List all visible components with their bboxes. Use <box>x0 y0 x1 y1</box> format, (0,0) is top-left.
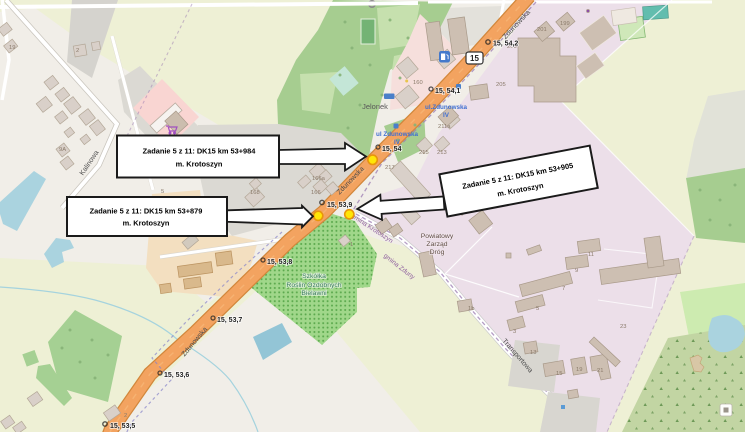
svg-text:199: 199 <box>560 21 570 27</box>
svg-text:7: 7 <box>562 286 565 292</box>
svg-text:15, 53,9: 15, 53,9 <box>327 202 352 209</box>
svg-text:11: 11 <box>588 252 594 258</box>
svg-text:Szkółka: Szkółka <box>302 273 326 280</box>
svg-text:1b: 1b <box>468 306 474 312</box>
svg-text:166: 166 <box>311 190 321 196</box>
svg-text:15, 54: 15, 54 <box>382 146 402 153</box>
svg-text:215: 215 <box>419 150 429 156</box>
svg-text:Bielawni: Bielawni <box>301 290 327 297</box>
svg-text:15, 53,5: 15, 53,5 <box>110 423 135 430</box>
svg-text:15, 53,6: 15, 53,6 <box>164 372 189 379</box>
svg-text:Zarząd: Zarząd <box>426 241 447 248</box>
svg-text:15, 53,7: 15, 53,7 <box>217 317 242 324</box>
svg-text:Jelonek: Jelonek <box>362 102 388 111</box>
svg-text:IV: IV <box>443 112 450 119</box>
svg-text:5: 5 <box>536 306 539 312</box>
svg-text:201: 201 <box>537 27 547 33</box>
svg-text:15, 53,8: 15, 53,8 <box>267 259 292 266</box>
svg-text:Dróg: Dróg <box>430 249 445 256</box>
svg-text:21: 21 <box>597 368 603 374</box>
svg-text:15: 15 <box>556 371 562 377</box>
svg-text:ul Zdunowska: ul Zdunowska <box>376 131 418 138</box>
svg-text:IV: IV <box>394 139 401 146</box>
svg-text:166a: 166a <box>312 176 326 182</box>
svg-text:211a: 211a <box>438 124 451 130</box>
svg-text:19: 19 <box>9 45 15 51</box>
svg-text:2: 2 <box>124 413 127 419</box>
svg-text:2: 2 <box>76 48 79 54</box>
svg-text:160: 160 <box>413 80 423 86</box>
svg-text:217: 217 <box>385 165 395 171</box>
svg-text:205: 205 <box>496 82 506 88</box>
svg-text:Roślin Ozdobnych: Roślin Ozdobnych <box>286 282 341 289</box>
svg-text:m. Krotoszyn: m. Krotoszyn <box>176 160 223 169</box>
svg-text:15, 54,2: 15, 54,2 <box>493 41 518 48</box>
svg-text:ul.Zdunowska: ul.Zdunowska <box>425 104 467 111</box>
svg-text:9A: 9A <box>59 147 66 153</box>
svg-text:Zadanie 5 z 11: DK15 km 53+984: Zadanie 5 z 11: DK15 km 53+984 <box>143 147 257 156</box>
svg-text:Powiatowy: Powiatowy <box>421 233 454 240</box>
svg-text:1: 1 <box>350 242 353 248</box>
svg-text:5: 5 <box>161 189 164 195</box>
svg-text:9: 9 <box>575 268 578 274</box>
svg-text:15, 54,1: 15, 54,1 <box>435 88 460 95</box>
svg-text:13: 13 <box>530 350 536 356</box>
svg-text:213: 213 <box>437 150 447 156</box>
svg-text:15: 15 <box>470 54 479 63</box>
svg-text:Zadanie 5 z 11: DK15 km 53+879: Zadanie 5 z 11: DK15 km 53+879 <box>90 207 203 216</box>
svg-text:19: 19 <box>576 367 582 373</box>
svg-text:3: 3 <box>513 329 516 335</box>
svg-text:168: 168 <box>250 190 260 196</box>
svg-text:23: 23 <box>620 324 626 330</box>
svg-text:m. Krotoszyn: m. Krotoszyn <box>123 219 170 228</box>
